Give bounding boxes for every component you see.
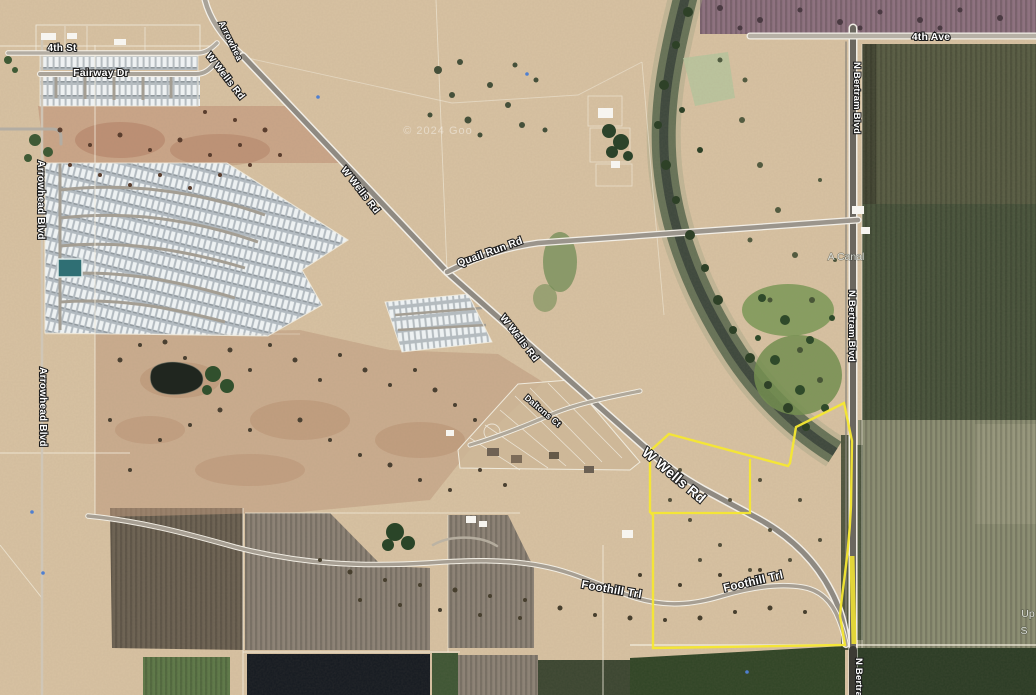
map-canvas[interactable]: 4th St Fairway Dr Arrowhea W Wells Rd Ar…	[0, 0, 1036, 695]
label-edge-partial-2: S	[1020, 625, 1027, 637]
label-a-canal: A Canal	[828, 251, 865, 263]
label-bertram-1: N Bertram Blvd	[851, 62, 862, 134]
label-4th-st: 4th St	[48, 43, 77, 54]
label-bertram-2: N Bertram Blvd	[846, 290, 857, 362]
label-bertram-3: N Bertram Blvd	[853, 658, 864, 695]
pool	[58, 259, 82, 277]
label-4th-ave: 4th Ave	[912, 31, 951, 43]
label-fairway-dr: Fairway Dr	[73, 67, 129, 79]
satellite-map: 4th St Fairway Dr Arrowhea W Wells Rd Ar…	[0, 0, 1036, 695]
label-watermark: © 2024 Goo	[403, 125, 472, 137]
label-edge-partial-1: Up	[1021, 608, 1035, 620]
label-arrowhead-blvd-2: Arrowhead Blvd	[37, 367, 48, 446]
label-arrowhead-blvd-1: Arrowhead Blvd	[35, 160, 46, 239]
